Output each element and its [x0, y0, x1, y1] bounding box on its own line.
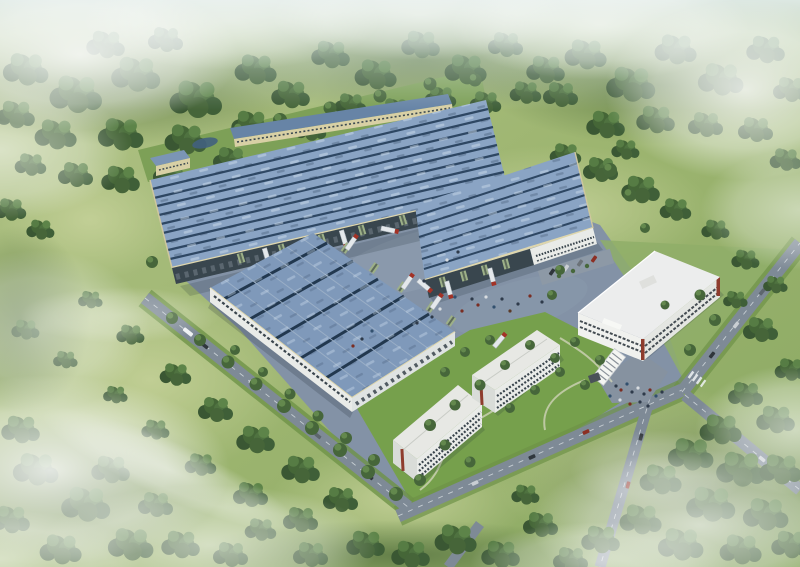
office-accent-red [641, 339, 645, 360]
scene-canvas [0, 0, 800, 567]
aerial-rendering [0, 0, 800, 567]
office-accent-red2 [717, 277, 721, 296]
